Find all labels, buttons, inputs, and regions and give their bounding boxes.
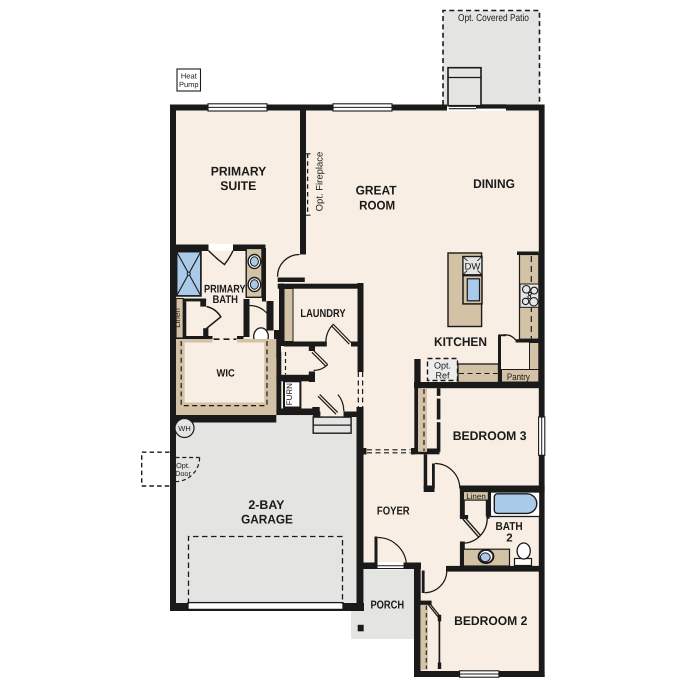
svg-text:BATH: BATH bbox=[212, 294, 238, 306]
svg-text:BEDROOM 3: BEDROOM 3 bbox=[453, 429, 527, 443]
svg-text:ROOM: ROOM bbox=[359, 198, 395, 212]
svg-text:Pump: Pump bbox=[179, 80, 199, 89]
svg-text:Linen: Linen bbox=[466, 492, 486, 501]
svg-text:LAUNDRY: LAUNDRY bbox=[300, 308, 345, 320]
svg-text:Pantry: Pantry bbox=[507, 372, 530, 383]
svg-text:BATH: BATH bbox=[496, 521, 523, 533]
svg-text:FOYER: FOYER bbox=[377, 505, 410, 517]
svg-text:KITCHEN: KITCHEN bbox=[434, 335, 487, 349]
svg-text:2: 2 bbox=[506, 533, 512, 545]
svg-text:PRIMARY: PRIMARY bbox=[211, 165, 267, 179]
svg-text:PORCH: PORCH bbox=[370, 600, 404, 612]
svg-text:Ref: Ref bbox=[435, 371, 450, 381]
svg-text:Opt.: Opt. bbox=[434, 361, 451, 371]
svg-text:Door: Door bbox=[175, 469, 191, 478]
svg-text:Opt. Covered Patio: Opt. Covered Patio bbox=[458, 13, 529, 24]
svg-text:DINING: DINING bbox=[473, 177, 515, 191]
svg-text:2-BAY: 2-BAY bbox=[248, 498, 285, 512]
svg-text:FURN: FURN bbox=[285, 383, 294, 405]
svg-text:SUITE: SUITE bbox=[220, 179, 256, 193]
svg-text:WH: WH bbox=[178, 424, 191, 433]
svg-text:BEDROOM 2: BEDROOM 2 bbox=[454, 614, 527, 628]
svg-text:WIC: WIC bbox=[217, 368, 236, 380]
svg-text:GREAT: GREAT bbox=[356, 183, 397, 197]
svg-text:GARAGE: GARAGE bbox=[241, 513, 293, 527]
svg-text:DW: DW bbox=[464, 262, 480, 273]
svg-text:Linen: Linen bbox=[173, 308, 182, 328]
svg-text:Opt. Fireplace: Opt. Fireplace bbox=[315, 152, 326, 212]
